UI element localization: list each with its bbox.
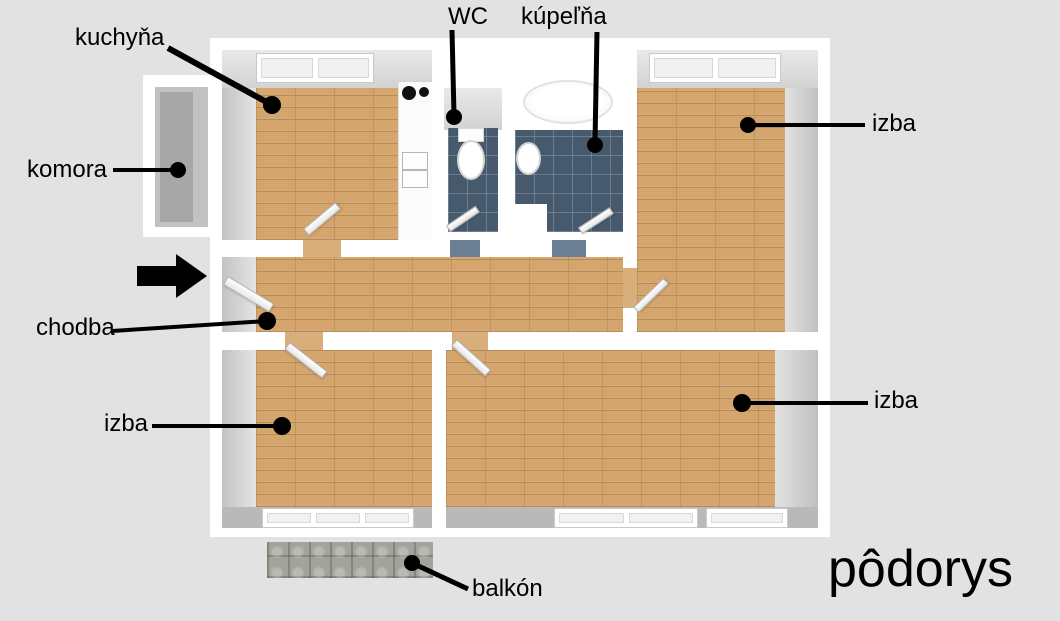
balcony-floor xyxy=(267,542,433,578)
room-bottom-left-window xyxy=(263,509,413,527)
window-pane xyxy=(316,513,360,523)
kitchen-door-threshold xyxy=(303,240,341,257)
window-pane xyxy=(559,513,624,523)
pantry-floor-shadow xyxy=(160,92,193,222)
label-wc: WC xyxy=(448,4,488,29)
wall-kitchen-wc xyxy=(432,50,444,240)
wall-bottom-rooms xyxy=(432,350,446,528)
kitchen-left-wall-face xyxy=(222,88,256,240)
window-pane xyxy=(711,513,783,523)
floor-plan-canvas: kuchyňa WC kúpeľňa komora izba chodba iz… xyxy=(0,0,1060,621)
label-room-top-right: izba xyxy=(872,111,916,136)
window-pane xyxy=(365,513,409,523)
window-pane xyxy=(267,513,311,523)
room-bottom-left-left-wall-face xyxy=(222,350,256,507)
hallway-floor xyxy=(256,257,624,332)
kitchen-window-pane xyxy=(318,58,370,78)
bathtub-basin xyxy=(523,80,613,124)
label-balcony: balkón xyxy=(472,576,543,601)
label-kitchen: kuchyňa xyxy=(75,25,164,50)
room-top-right-door-threshold xyxy=(623,268,637,308)
label-pantry: komora xyxy=(27,157,107,182)
room-bottom-right-floor xyxy=(446,350,775,507)
wall-wc-bathroom xyxy=(502,50,515,240)
label-room-bottom-right: izba xyxy=(874,388,918,413)
bathroom-sink-icon xyxy=(516,142,541,175)
room-top-right-right-wall-face xyxy=(785,88,818,332)
page-title: pôdorys xyxy=(828,543,1013,595)
entrance-arrow-icon xyxy=(137,254,207,298)
window-pane xyxy=(718,58,777,78)
room-top-right-window xyxy=(650,54,780,82)
wc-top-wall-face xyxy=(444,88,502,130)
label-bathroom: kúpeľňa xyxy=(521,4,607,29)
room-top-right-floor xyxy=(637,88,785,332)
kitchen-window-pane xyxy=(261,58,313,78)
room-bottom-right-right-wall-face xyxy=(775,350,818,507)
room-bottom-right-window-1 xyxy=(555,509,697,527)
window-pane xyxy=(629,513,694,523)
stove-burner-icon xyxy=(419,87,429,97)
wc-door-threshold xyxy=(450,240,480,257)
room-bottom-right-window-2 xyxy=(707,509,787,527)
kitchen-fridge xyxy=(402,170,428,188)
label-hallway: chodba xyxy=(36,315,115,340)
bathroom-floor-notch xyxy=(515,204,547,232)
room-bottom-left-floor xyxy=(256,350,432,507)
label-room-bottom-left: izba xyxy=(104,411,148,436)
toilet-bowl-icon xyxy=(457,140,485,180)
stove-burner-icon xyxy=(402,86,416,100)
kitchen-sink xyxy=(402,152,428,170)
kitchen-window xyxy=(257,54,373,82)
bathroom-door-threshold xyxy=(552,240,586,257)
window-pane xyxy=(654,58,713,78)
